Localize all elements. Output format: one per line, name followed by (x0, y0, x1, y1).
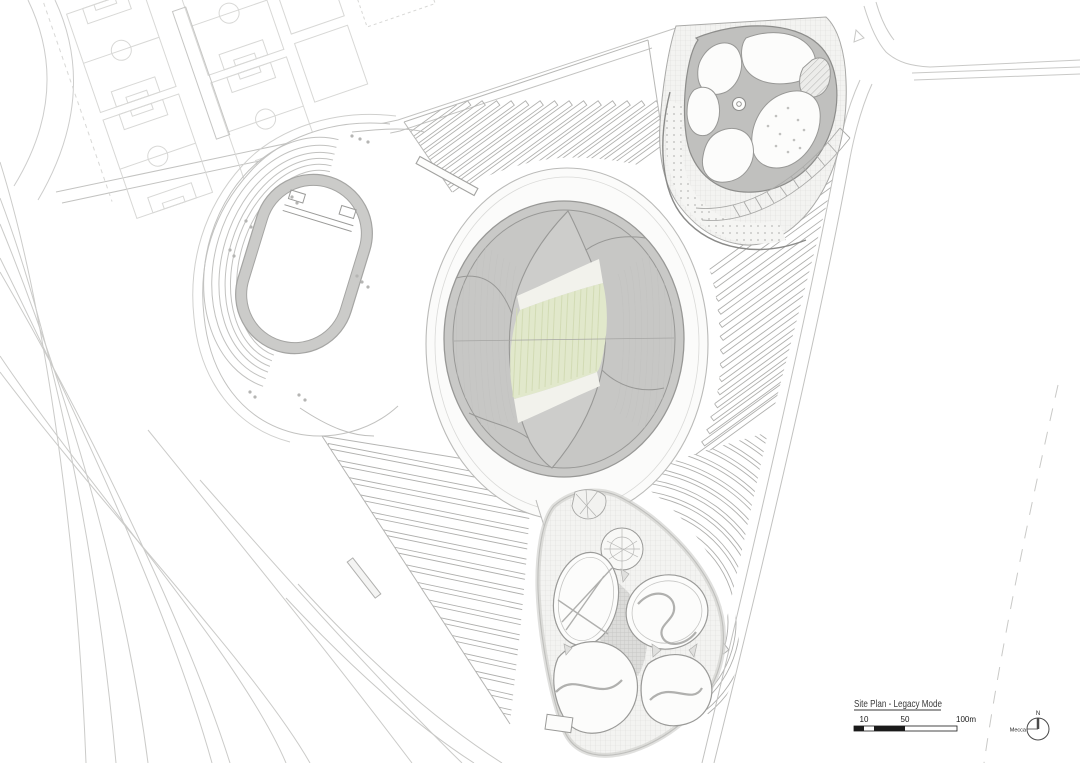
svg-text:10: 10 (860, 715, 869, 724)
svg-text:Mecca: Mecca (1010, 728, 1027, 734)
svg-text:Site Plan - Legacy Mode: Site Plan - Legacy Mode (854, 699, 942, 710)
svg-text:100m: 100m (956, 715, 976, 724)
svg-text:N: N (1036, 711, 1040, 717)
svg-text:50: 50 (901, 715, 910, 724)
